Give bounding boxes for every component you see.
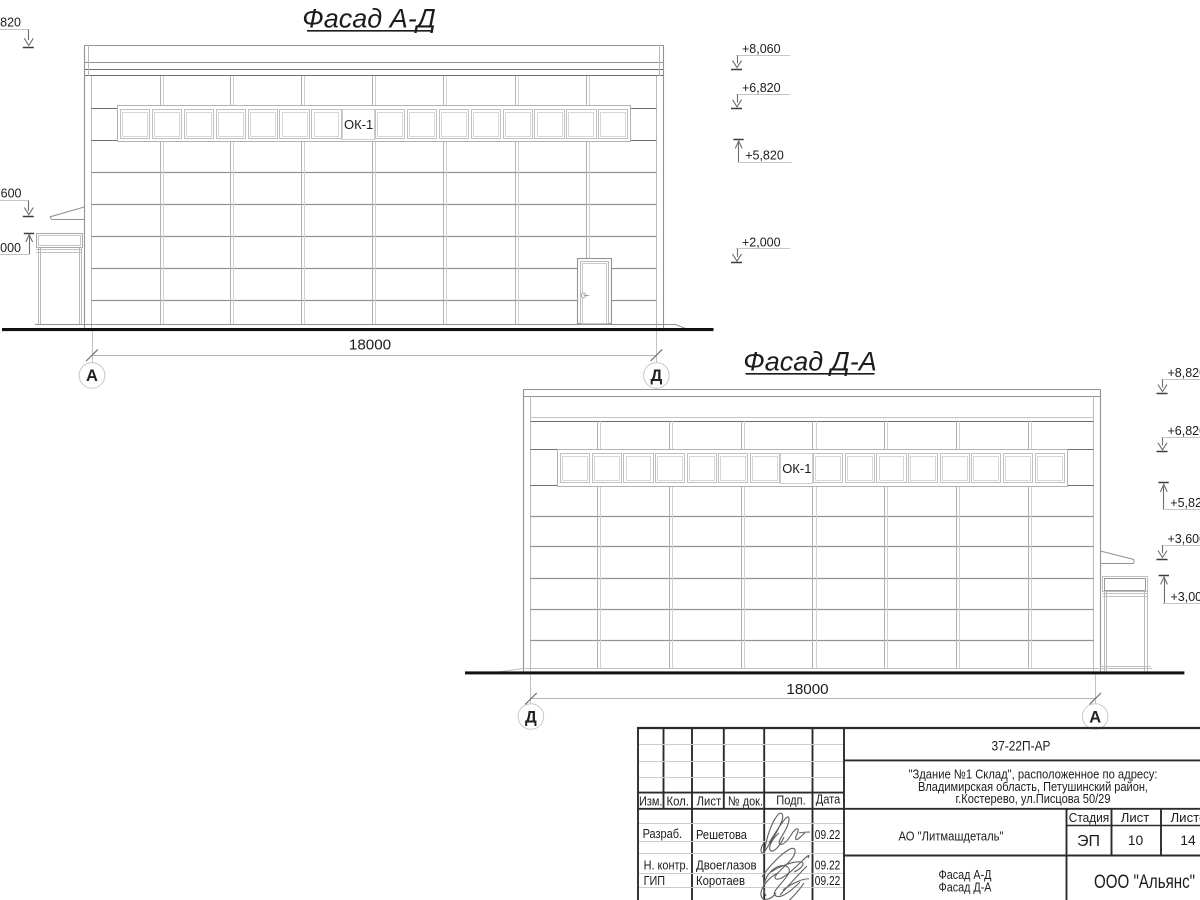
svg-text:+5,820: +5,820 (1170, 496, 1200, 510)
svg-text:18000: 18000 (786, 681, 828, 698)
svg-text:Листов: Листов (1171, 810, 1200, 825)
svg-text:А: А (86, 367, 98, 385)
svg-text:+8,820: +8,820 (1168, 366, 1200, 380)
svg-text:А: А (1089, 708, 1101, 726)
svg-text:Д: Д (651, 367, 663, 385)
svg-text:+6,820: +6,820 (1168, 424, 1200, 438)
svg-text:Фасад А-Д: Фасад А-Д (302, 4, 435, 34)
svg-text:Коротаев: Коротаев (696, 873, 745, 888)
svg-text:Разраб.: Разраб. (643, 826, 683, 841)
svg-text:000: 000 (0, 241, 21, 255)
svg-text:+5,820: +5,820 (745, 149, 784, 163)
svg-text:АО "Литмашдеталь": АО "Литмашдеталь" (899, 829, 1004, 844)
svg-text:Кол.: Кол. (666, 793, 689, 808)
svg-text:Стадия: Стадия (1069, 810, 1110, 825)
svg-text:+3,000: +3,000 (1171, 590, 1200, 604)
svg-text:ЭП: ЭП (1077, 833, 1100, 850)
svg-text:Решетова: Решетова (696, 827, 748, 842)
svg-text:+2,000: +2,000 (742, 235, 781, 249)
svg-text:09.22: 09.22 (815, 827, 841, 842)
svg-text:ОК-1: ОК-1 (344, 117, 373, 132)
svg-text:Лист: Лист (1121, 810, 1150, 825)
svg-text:37-22П-АР: 37-22П-АР (992, 739, 1051, 754)
svg-text:Д: Д (525, 708, 537, 726)
svg-text:09.22: 09.22 (815, 873, 841, 888)
svg-text:+3,600: +3,600 (1168, 532, 1200, 546)
svg-text:ОК-1: ОК-1 (782, 461, 811, 476)
svg-text:г.Костерево, ул.Писцова 50/29: г.Костерево, ул.Писцова 50/29 (956, 791, 1111, 806)
svg-text:18000: 18000 (349, 337, 391, 354)
svg-text:Фасад Д-А: Фасад Д-А (743, 347, 876, 377)
svg-text:Фасад Д-А: Фасад Д-А (939, 880, 992, 895)
svg-text:Изм.: Изм. (639, 793, 663, 808)
svg-text:Подп.: Подп. (776, 792, 806, 807)
svg-text:+6,820: +6,820 (742, 81, 781, 95)
svg-text:09.22: 09.22 (815, 857, 841, 872)
svg-text:№ док.: № док. (728, 793, 763, 808)
svg-text:600: 600 (1, 186, 22, 200)
svg-text:Дата: Дата (816, 791, 841, 806)
svg-text:ГИП: ГИП (644, 873, 666, 888)
svg-text:Лист: Лист (697, 793, 722, 808)
svg-text:10: 10 (1128, 832, 1144, 848)
svg-text:820: 820 (0, 15, 21, 29)
svg-text:14: 14 (1180, 832, 1196, 848)
svg-text:Двоеглазов: Двоеглазов (696, 857, 757, 872)
svg-text:+8,060: +8,060 (742, 42, 781, 56)
svg-text:Н. контр.: Н. контр. (644, 857, 689, 872)
svg-text:ООО "Альянс": ООО "Альянс" (1094, 871, 1195, 893)
